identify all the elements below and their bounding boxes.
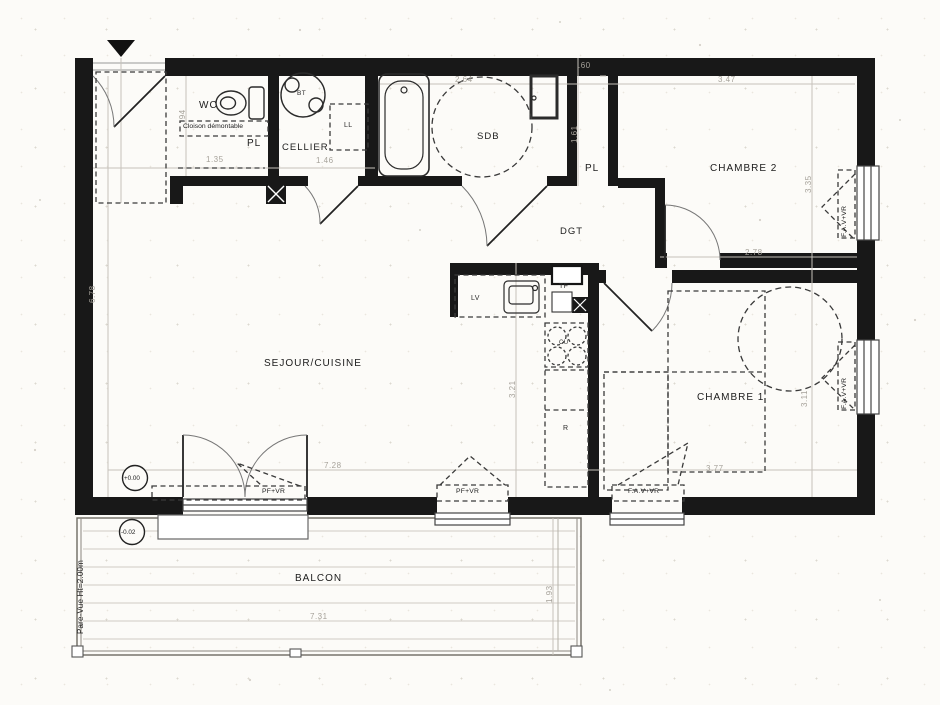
dim-balcon-width: 7.31 [310, 612, 328, 621]
note-removable-partition: Cloison démontable [183, 123, 243, 130]
ch1-wardrobe [604, 372, 668, 490]
window-sills [158, 166, 879, 539]
dim-pl-width: .60 [578, 61, 591, 70]
kitchen-sink [504, 281, 539, 313]
structural-posts [266, 184, 588, 313]
ch1-turning-circle [738, 287, 842, 391]
room-label-balcon: BALCON [295, 573, 342, 584]
room-label-sejour: SEJOUR/CUISINE [264, 358, 362, 369]
ch1-bed [668, 291, 765, 472]
equip-label-cu: CU [559, 340, 568, 346]
closet-label-pl-dgt: PL [585, 163, 599, 174]
dim-wc-depth: .94 [178, 109, 187, 122]
toilet [216, 87, 264, 119]
room-label-chambre2: CHAMBRE 2 [710, 163, 777, 174]
room-label-dgt: DGT [560, 226, 583, 237]
sdb-turning-circle [432, 77, 532, 177]
door-leaves [114, 76, 665, 497]
opening-label-ch1-south-window: F.A.V+VR [628, 488, 659, 495]
balcony [72, 518, 582, 657]
balcony-decking [83, 531, 575, 639]
equip-label-bt: BT [297, 90, 306, 97]
dim-sejour-width: 7.28 [324, 461, 342, 470]
room-label-sdb: SDB [477, 131, 500, 142]
floor-plan-drawing [0, 0, 940, 705]
dim-sdb-depth: 1.61 [570, 125, 579, 143]
note-pare-vue: Pare-Vue Ht=2.00m [76, 560, 85, 634]
entry-marker [107, 40, 135, 57]
dim-ch2-inner-width: 2.78 [745, 248, 763, 257]
room-label-cellier: CELLIER [282, 142, 329, 153]
opening-label-ch1-east-window: F.A.V+VR [841, 378, 848, 409]
door-swings [93, 76, 720, 497]
opening-label-ch2-east-window: F.A.V+VR [841, 206, 848, 237]
dim-sejour-depth: 6.78 [88, 285, 97, 303]
dim-cuisine-depth: 3.21 [508, 380, 517, 398]
room-label-chambre1: CHAMBRE 1 [697, 392, 764, 403]
equip-label-tf: TF [559, 283, 568, 290]
entry-closet [96, 72, 166, 203]
closet-label-pl-wc: PL [247, 138, 261, 149]
dim-ch1-depth: 3.11 [800, 390, 809, 407]
dim-balcon-depth: 1.93 [545, 585, 554, 603]
dim-ch1-width: 3.77 [706, 464, 724, 473]
level-interior: +0.00 [124, 475, 140, 482]
dim-wc-pl-width: 1.35 [206, 155, 224, 164]
floor-plan-page: SEJOUR/CUISINE WC CELLIER SDB DGT CHAMBR… [0, 0, 940, 705]
bathtub [379, 74, 429, 176]
technical-shaft [531, 76, 557, 118]
dim-ch2-width: 3.47 [718, 75, 736, 84]
opening-label-sejour-door: PF+VR [262, 488, 285, 495]
dashed-annotations [96, 72, 855, 501]
level-balcon: -0.02 [121, 529, 135, 536]
opening-label-sejour-window: PF+VR [456, 488, 479, 495]
room-label-wc: WC [199, 100, 218, 111]
equip-label-ll: LL [344, 122, 353, 129]
dim-sdb-width: 2.64 [455, 75, 473, 84]
equip-label-lv: LV [471, 295, 480, 302]
dim-cellier-width: 1.46 [316, 156, 334, 165]
equip-label-r: R [563, 425, 568, 432]
dim-ch2-depth: 3.35 [804, 175, 813, 193]
